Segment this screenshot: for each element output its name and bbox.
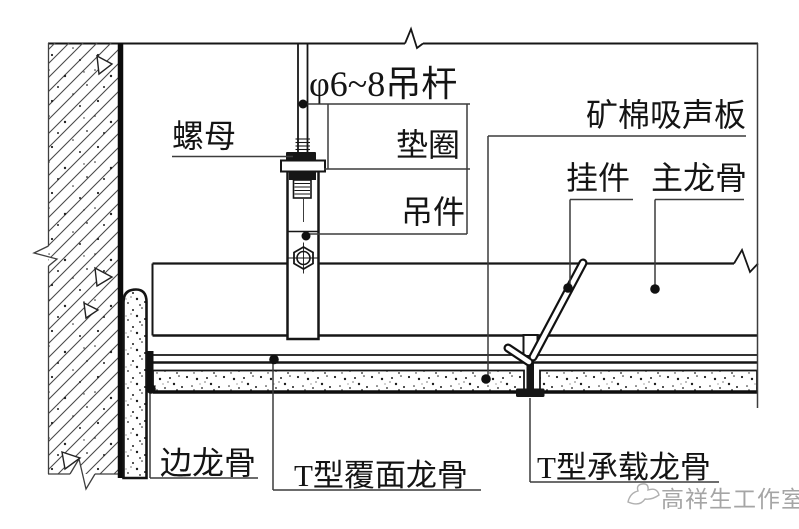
- label-t-facing-runner: T型覆面龙骨: [294, 458, 468, 493]
- label-washer: 垫圈: [396, 127, 460, 163]
- t-runner-bottom-flange: [516, 389, 545, 398]
- label-nut: 螺母: [172, 118, 236, 154]
- dot-acoustic-panel: [481, 374, 491, 384]
- washer-plate: [281, 161, 325, 172]
- acoustic-panels: [153, 371, 757, 393]
- dot-hanger-rod: [299, 100, 308, 109]
- detail-drawing-canvas: φ6~8吊杆 螺母 垫圈 吊件 矿棉吸声板 挂件 主龙骨 边龙骨 T型覆面龙骨 …: [0, 0, 799, 529]
- wall-trim-strip-body: [124, 290, 147, 479]
- label-clip: 挂件: [566, 160, 630, 196]
- label-hanger: 吊件: [401, 194, 465, 230]
- dot-edge-runner: [146, 384, 156, 394]
- threaded-stub: [294, 180, 312, 198]
- label-edge-runner: 边龙骨: [160, 445, 256, 481]
- wall-aggregate-dots: [48, 43, 119, 474]
- label-t-bearing-runner: T型承载龙骨: [537, 450, 711, 485]
- dot-t-facing-runner: [269, 355, 279, 365]
- acoustic-panel-right: [540, 371, 757, 392]
- label-acoustic-panel: 矿棉吸声板: [586, 97, 746, 133]
- label-main-runner: 主龙骨: [651, 160, 747, 196]
- label-hanger-rod: φ6~8吊杆: [309, 64, 457, 104]
- dot-clip: [563, 283, 573, 293]
- ceiling-detail-drawing: φ6~8吊杆 螺母 垫圈 吊件 矿棉吸声板 挂件 主龙骨 边龙骨 T型覆面龙骨 …: [0, 0, 799, 529]
- lower-nut: [289, 172, 316, 181]
- dot-hanger: [302, 232, 311, 241]
- wall-trim-strip: [124, 290, 147, 479]
- acoustic-panel-left: [153, 371, 524, 392]
- watermark-text: 高祥生工作室: [661, 487, 799, 512]
- dot-main-runner: [650, 284, 660, 294]
